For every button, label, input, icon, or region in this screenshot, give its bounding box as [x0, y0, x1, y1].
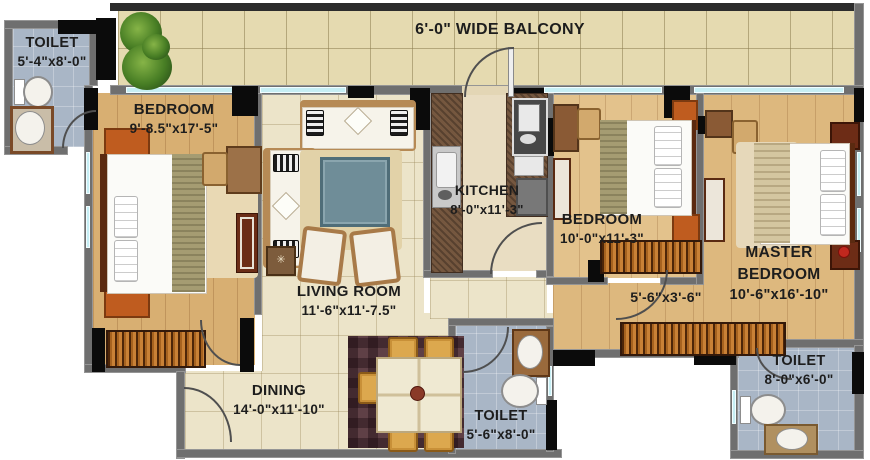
- toilet-middle-label: TOILET 5'-6"x8'-0": [452, 406, 550, 445]
- bathtub-basin: [15, 111, 45, 145]
- pillow: [820, 194, 846, 236]
- window-toilet-right: [732, 390, 736, 424]
- room-name: TOILET: [8, 33, 96, 53]
- bedroom-middle-label: BEDROOM 10'-0"x11'-3": [537, 209, 667, 249]
- window-bedroom-left-wall-2: [86, 206, 90, 248]
- toilet-top-left-label: TOILET 5'-4"x8'-0": [8, 33, 96, 72]
- room-dims: 5'-6"x8'-0": [452, 426, 550, 445]
- dresser: [705, 110, 733, 138]
- room-name: TOILET: [740, 351, 858, 371]
- room-dims: 8'-0"x11'-3": [428, 201, 546, 219]
- toilet-right-label: TOILET 8'-0"x6'-0": [740, 351, 858, 390]
- pillow: [654, 126, 682, 166]
- desk-chair: [202, 152, 228, 186]
- room-name: TOILET: [452, 406, 550, 426]
- stove-top: [518, 104, 540, 132]
- room-name: BEDROOM: [95, 99, 253, 120]
- sofa-pillow: [273, 154, 299, 172]
- room-name-line2: BEDROOM: [704, 264, 854, 286]
- balcony-label-text: 6'-0" WIDE BALCONY: [415, 21, 585, 38]
- toilet-wc-bowl: [23, 76, 53, 108]
- stove-oval: [520, 134, 536, 144]
- window-living-band: [260, 87, 346, 93]
- plant-icon: [142, 34, 170, 60]
- toilet-wc-bowl: [750, 394, 786, 426]
- column: [553, 350, 595, 366]
- window-bedroom-middle-band: [544, 87, 662, 93]
- pillow: [820, 150, 846, 192]
- armchair: [349, 226, 401, 287]
- room-dims: 10'-0"x11'-3": [537, 230, 667, 249]
- column: [348, 86, 374, 98]
- balcony-label: 6'-0" WIDE BALCONY: [370, 19, 630, 41]
- dresser: [236, 213, 258, 273]
- kitchen-label: KITCHEN 8'-0"x11'-3": [428, 181, 546, 219]
- room-name-line1: MASTER: [704, 242, 854, 264]
- room-dims: 9'-8.5"x17'-5": [95, 120, 253, 139]
- dresser-unit: [704, 178, 725, 242]
- window-bedroom-left-wall-1: [86, 152, 90, 194]
- bed-blanket: [600, 120, 627, 214]
- room-name: LIVING ROOM: [266, 281, 432, 302]
- room-dims: 5'-6"x3'-6": [608, 288, 724, 308]
- room-dims: 11'-6"x11'-7.5": [266, 302, 432, 321]
- column: [854, 88, 864, 122]
- sofa-pillow: [306, 110, 324, 136]
- bedroom-left-label: BEDROOM 9'-8.5"x17'-5": [95, 99, 253, 139]
- sink-basin: [776, 428, 808, 450]
- master-bedroom-label: MASTER BEDROOM 10'-6"x16'-10": [704, 242, 854, 306]
- pillow: [654, 168, 682, 208]
- side-table: ✳: [266, 246, 296, 276]
- room-dims: 8'-0"x6'-0": [740, 371, 858, 390]
- desk: [226, 146, 262, 194]
- wall-balcony-right: [854, 3, 864, 91]
- room-dims: 14'-0"x11'-10": [198, 401, 360, 420]
- dining-label: DINING 14'-0"x11'-10": [198, 380, 360, 420]
- room-dims: 10'-6"x16'-10": [704, 285, 854, 305]
- window-master-wall-1: [857, 152, 861, 196]
- sink-basin: [517, 335, 543, 369]
- coffee-table: [320, 157, 390, 227]
- room-name: BEDROOM: [537, 209, 667, 230]
- passage-label: 5'-6"x3'-6": [608, 288, 724, 308]
- pillow: [114, 196, 138, 238]
- bed-headboard: [100, 154, 107, 292]
- column: [92, 328, 105, 372]
- armchair: [297, 226, 347, 287]
- table-centerpiece: [410, 386, 425, 401]
- bed-blanket: [754, 143, 790, 243]
- living-room-label: LIVING ROOM 11'-6"x11'-7.5": [266, 281, 432, 321]
- toilet-wc-bowl: [501, 374, 539, 408]
- wall-balcony-top: [110, 3, 864, 11]
- kitchen-drawer: [514, 156, 544, 176]
- bench: [577, 108, 601, 140]
- foyer-floor: [430, 277, 547, 319]
- desk: [553, 104, 579, 152]
- room-dims: 5'-4"x8'-0": [8, 53, 96, 72]
- sofa-pillow: [390, 110, 408, 136]
- column: [96, 18, 116, 80]
- wall-dining-bottom: [176, 449, 562, 458]
- room-name: DINING: [198, 380, 360, 401]
- bed-blanket: [172, 154, 205, 292]
- room-name: KITCHEN: [428, 181, 546, 201]
- wall-toilet-mid-top: [448, 318, 554, 326]
- column: [240, 318, 254, 372]
- window-master-band: [694, 87, 844, 93]
- wardrobe: [106, 330, 206, 368]
- floor-plan: ✳: [0, 0, 870, 460]
- column: [58, 20, 96, 34]
- pillow: [114, 240, 138, 282]
